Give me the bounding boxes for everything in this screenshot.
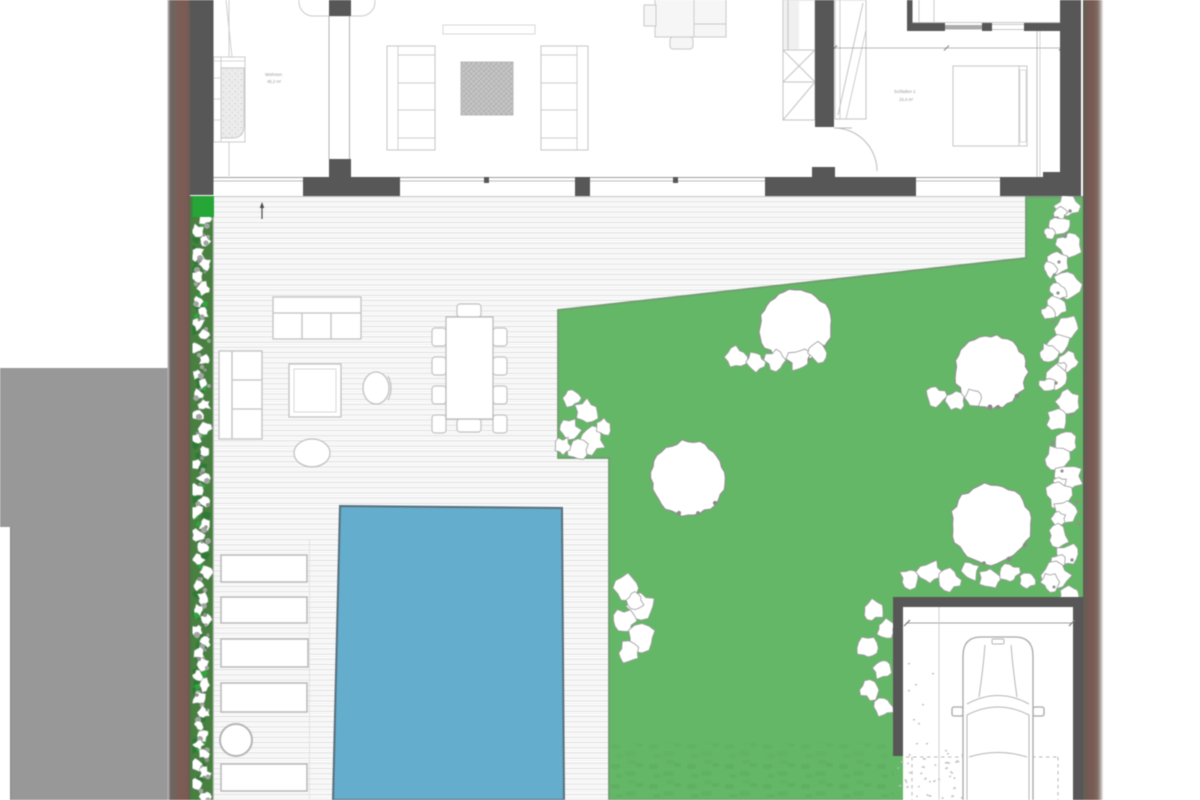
svg-text:16,4 m²: 16,4 m² bbox=[899, 97, 914, 102]
svg-text:Schlafen 1: Schlafen 1 bbox=[894, 89, 916, 94]
svg-text:Wohnen: Wohnen bbox=[265, 72, 282, 77]
svg-text:45,2 m²: 45,2 m² bbox=[267, 79, 282, 84]
